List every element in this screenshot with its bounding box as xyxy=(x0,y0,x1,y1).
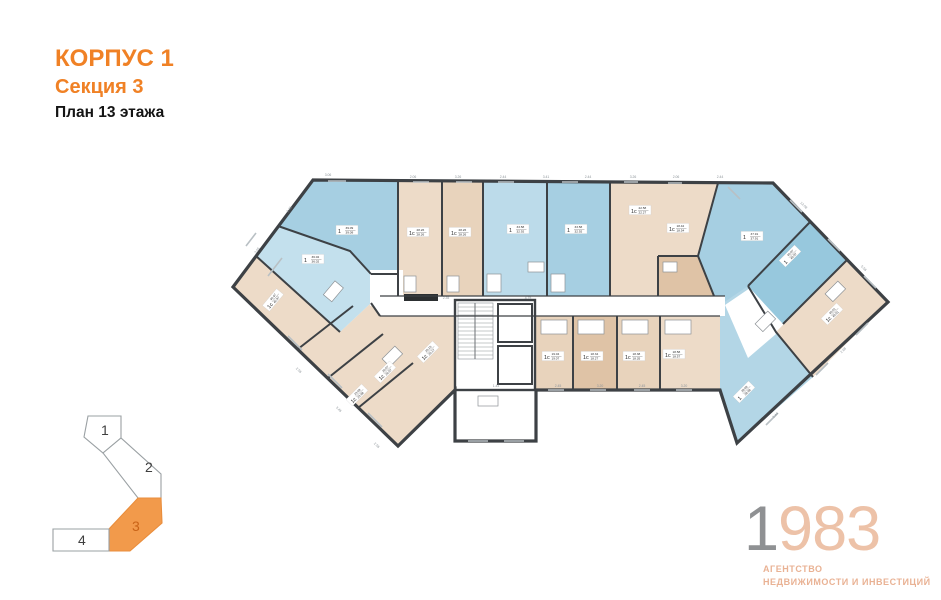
svg-text:28.26: 28.26 xyxy=(417,233,425,237)
apartment-label-T1[interactable]: 1с28.2628.26 xyxy=(407,227,429,237)
dimension-text: 2.06 xyxy=(673,175,680,179)
building-title: КОРПУС 1 xyxy=(55,44,174,74)
apartment-label-B4[interactable]: 1с19.0419.07 xyxy=(542,351,564,361)
svg-text:18.34: 18.34 xyxy=(591,352,599,356)
svg-text:37.91: 37.91 xyxy=(751,237,759,241)
svg-text:18.54: 18.54 xyxy=(677,229,685,233)
logo-year: 1983 xyxy=(744,498,926,561)
plan-header: КОРПУС 1 Секция 3 План 13 этажа xyxy=(55,44,174,124)
svg-text:33.58: 33.58 xyxy=(575,225,583,229)
svg-text:18.42: 18.42 xyxy=(677,224,685,228)
dimension-text: 1.44 xyxy=(493,384,500,388)
svg-text:1с: 1с xyxy=(544,355,550,361)
apartment-label-B6[interactable]: 1с18.3818.35 xyxy=(623,351,645,361)
svg-text:1с: 1с xyxy=(451,231,457,237)
apartment-label-W2[interactable]: 136.0236.02 xyxy=(302,254,324,264)
floor-plan: 139.0939.09136.0236.021с40.9740.971с28.2… xyxy=(228,166,893,456)
section-title: Секция 3 xyxy=(55,74,174,101)
dimension-text: 3.41 xyxy=(543,175,550,179)
dimension-text: 3.20 xyxy=(597,384,604,388)
dimension-text: 2.44 xyxy=(717,175,724,179)
svg-text:22.27: 22.27 xyxy=(639,211,647,215)
apartment-label-T2[interactable]: 1с28.2628.26 xyxy=(449,227,471,237)
apartment-label-R1[interactable]: 137.9137.91 xyxy=(741,231,763,241)
svg-text:22.58: 22.58 xyxy=(639,206,647,210)
apartment-label-T5[interactable]: 1с22.5822.27 xyxy=(629,205,651,215)
svg-text:1с: 1с xyxy=(669,227,675,233)
floor-plan-svg: 139.0939.09136.0236.021с40.9740.971с28.2… xyxy=(228,166,893,456)
svg-text:18.35: 18.35 xyxy=(633,357,641,361)
minimap-svg: 1 2 3 4 xyxy=(32,404,192,569)
dimension-text: 2.35 xyxy=(443,296,450,300)
svg-text:1: 1 xyxy=(338,229,341,235)
apartment-label-T3[interactable]: 133.5832.92 xyxy=(507,224,529,234)
dimension-text: 3.44 xyxy=(772,411,780,419)
dimension-text: 2.44 xyxy=(585,175,592,179)
minimap-label-2: 2 xyxy=(145,459,153,475)
dimension-text: 3.26 xyxy=(630,175,637,179)
svg-text:37.91: 37.91 xyxy=(751,232,759,236)
svg-text:39.09: 39.09 xyxy=(346,231,354,235)
logo-year-rest: 983 xyxy=(778,494,880,564)
svg-text:33.58: 33.58 xyxy=(517,225,525,229)
dimension-text: 2.44 xyxy=(500,175,507,179)
dimension-text: 2.56 xyxy=(295,367,303,375)
svg-text:1: 1 xyxy=(509,228,512,234)
dimension-text: 5.56 xyxy=(860,265,868,273)
floor-title: План 13 этажа xyxy=(55,101,174,124)
apartment-label-W1[interactable]: 139.0939.09 xyxy=(336,225,358,235)
dimension-text: 3.46 xyxy=(335,406,343,414)
svg-text:36.02: 36.02 xyxy=(312,255,320,259)
logo-tagline-line2: НЕДВИЖИМОСТИ И ИНВЕСТИЦИЙ xyxy=(763,576,926,589)
dimension-text: 12.08 xyxy=(799,201,808,210)
apartment-label-T4[interactable]: 133.5832.92 xyxy=(565,224,587,234)
dimension-text: 2.56 xyxy=(373,442,381,450)
dimension-text: 2.45 xyxy=(639,384,646,388)
svg-text:39.09: 39.09 xyxy=(346,226,354,230)
minimap-label-1: 1 xyxy=(101,422,109,438)
svg-text:1с: 1с xyxy=(583,355,589,361)
section-minimap: 1 2 3 4 xyxy=(32,404,192,574)
svg-text:1с: 1с xyxy=(665,353,671,359)
svg-text:1: 1 xyxy=(743,235,746,241)
logo-tagline: АГЕНТСТВО НЕДВИЖИМОСТИ И ИНВЕСТИЦИЙ xyxy=(763,563,926,589)
drawing-stamp xyxy=(404,294,438,301)
svg-text:19.07: 19.07 xyxy=(552,357,560,361)
svg-text:36.02: 36.02 xyxy=(312,260,320,264)
dimension-text: 3.06 xyxy=(325,173,332,177)
svg-text:1с: 1с xyxy=(631,209,637,215)
dimension-text: 3.26 xyxy=(455,175,462,179)
svg-text:19.04: 19.04 xyxy=(552,352,560,356)
minimap-label-4: 4 xyxy=(78,532,86,548)
svg-text:18.27: 18.27 xyxy=(591,357,599,361)
svg-text:1: 1 xyxy=(304,258,307,264)
dimension-text: 2.45 xyxy=(555,384,562,388)
minimap-label-3: 3 xyxy=(132,518,140,534)
dimension-text: 4.75 xyxy=(525,296,532,300)
svg-text:32.92: 32.92 xyxy=(575,230,583,234)
svg-text:1с: 1с xyxy=(409,231,415,237)
svg-text:1с: 1с xyxy=(625,355,631,361)
svg-text:18.58: 18.58 xyxy=(673,350,681,354)
svg-text:18.38: 18.38 xyxy=(633,352,641,356)
svg-text:1: 1 xyxy=(567,228,570,234)
apartment-label-B5[interactable]: 1с18.3418.27 xyxy=(581,351,603,361)
logo-tagline-line1: АГЕНТСТВО xyxy=(763,563,926,576)
svg-text:28.26: 28.26 xyxy=(459,233,467,237)
dimension-text: 3.20 xyxy=(681,384,688,388)
agency-logo: 1983 АГЕНТСТВО НЕДВИЖИМОСТИ И ИНВЕСТИЦИЙ xyxy=(744,498,926,589)
logo-year-digit1: 1 xyxy=(744,494,778,564)
svg-text:28.26: 28.26 xyxy=(459,228,467,232)
apartment-label-T6[interactable]: 1с18.4218.54 xyxy=(667,223,689,233)
apartment-label-B7[interactable]: 1с18.5818.57 xyxy=(663,349,685,359)
svg-text:18.57: 18.57 xyxy=(673,355,681,359)
dimension-text: 2.06 xyxy=(410,175,417,179)
svg-text:28.26: 28.26 xyxy=(417,228,425,232)
svg-text:32.92: 32.92 xyxy=(517,230,525,234)
